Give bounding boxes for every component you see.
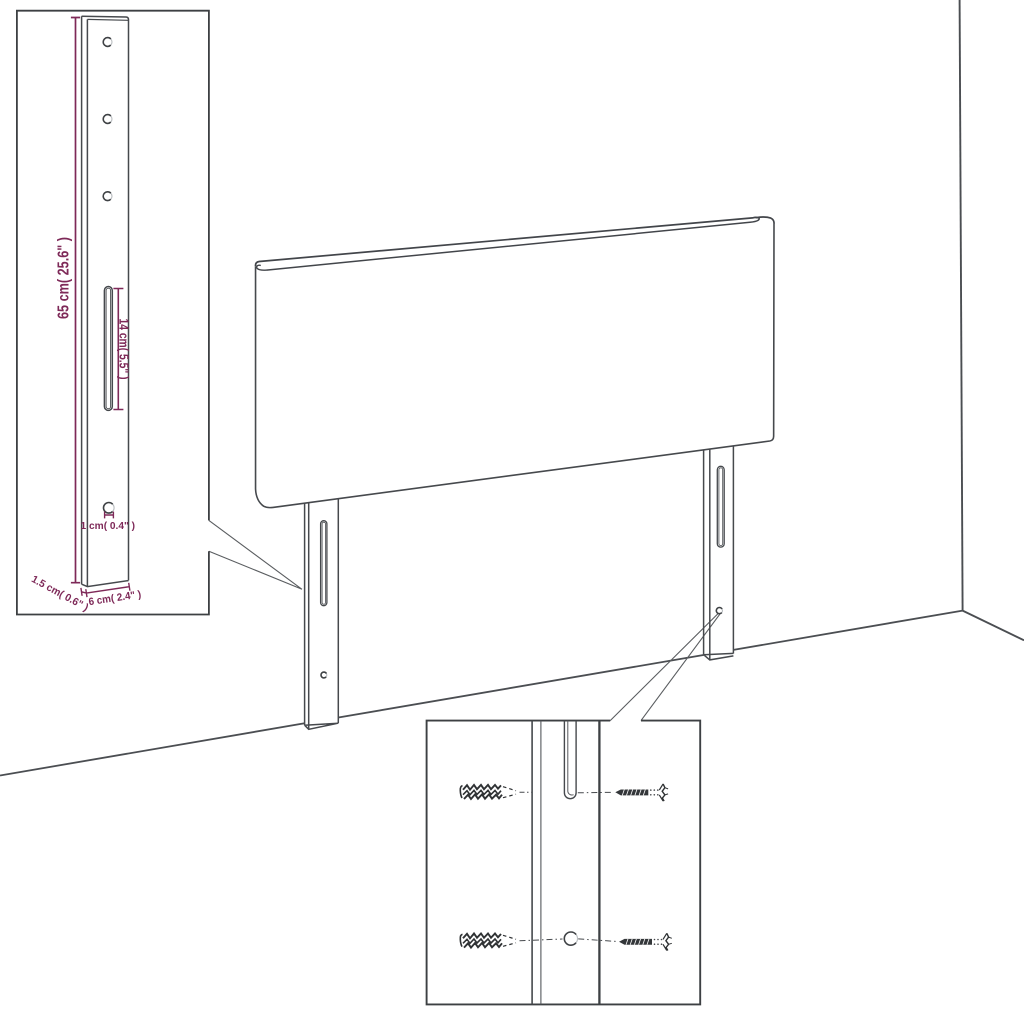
svg-text:14 cm( 5.5" ): 14 cm( 5.5" ) [117,319,132,380]
svg-text:1 cm( 0.4" ): 1 cm( 0.4" ) [81,520,136,532]
svg-text:65 cm( 25.6" ): 65 cm( 25.6" ) [56,237,73,319]
